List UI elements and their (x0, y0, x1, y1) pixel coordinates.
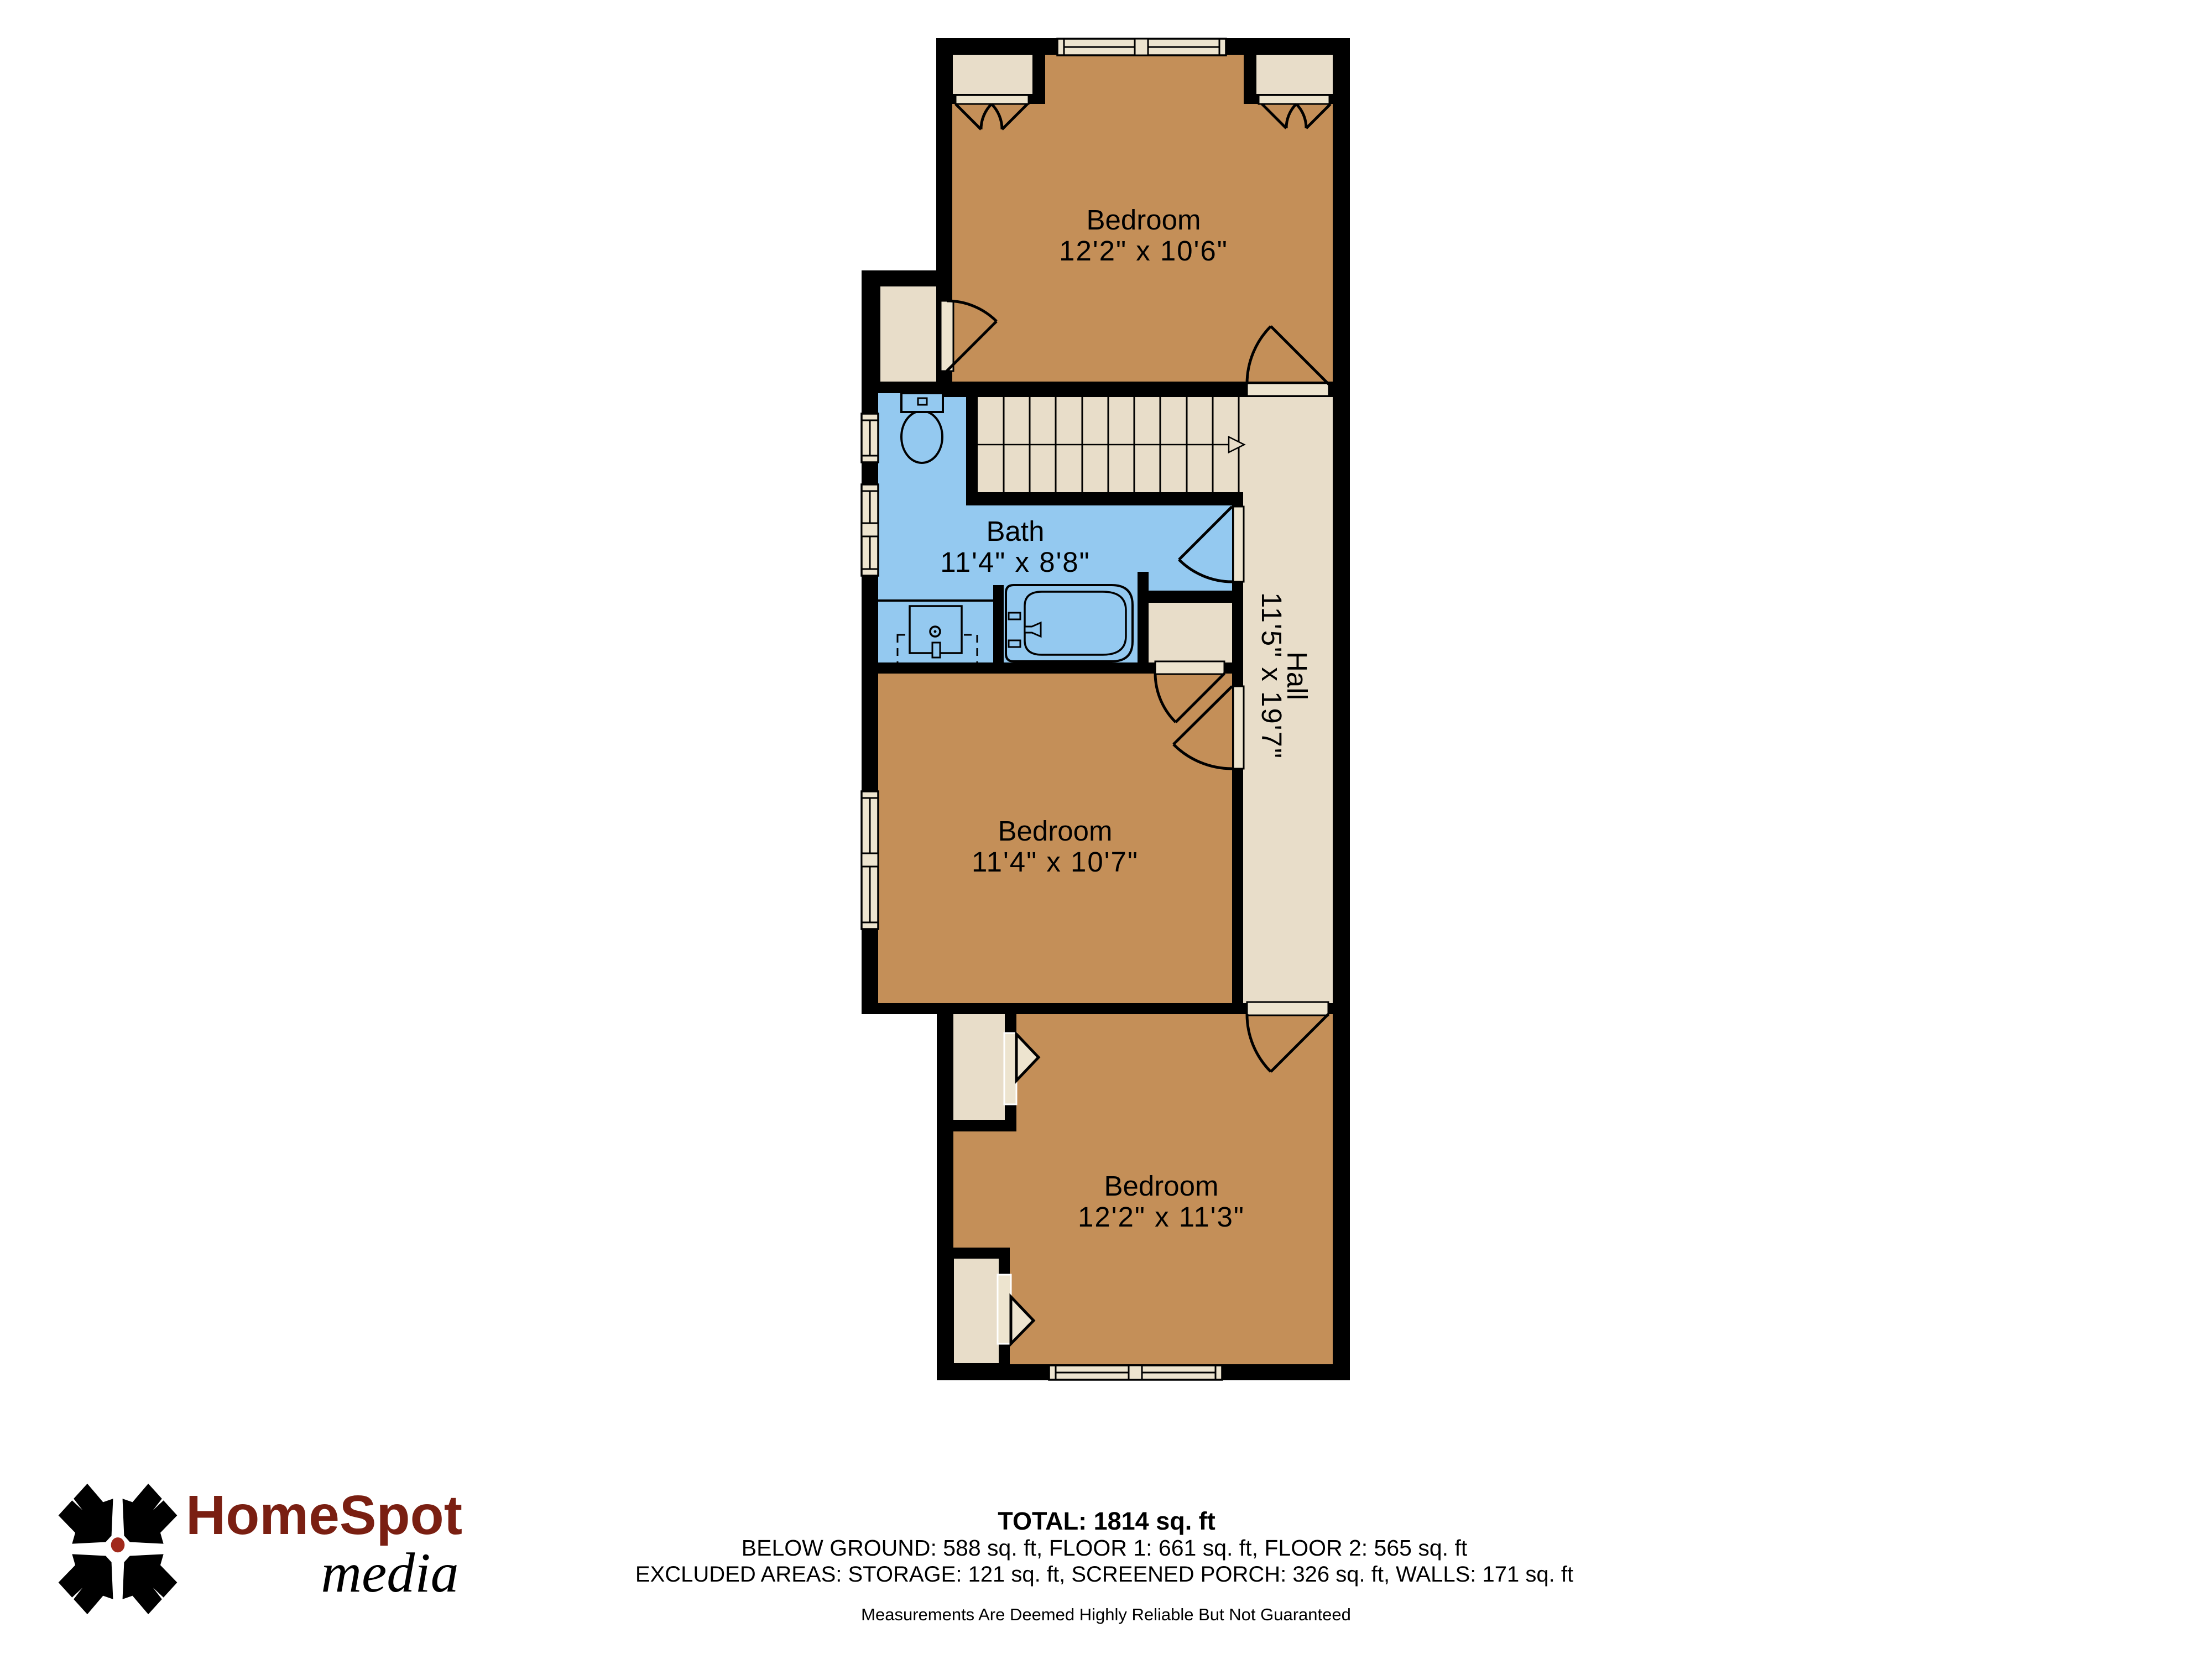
svg-text:Bedroom: Bedroom (1087, 204, 1201, 236)
svg-text:Measurements Are Deemed Highly: Measurements Are Deemed Highly Reliable … (861, 1605, 1351, 1624)
svg-text:Bedroom: Bedroom (998, 815, 1113, 847)
svg-text:11'4" x 10'7": 11'4" x 10'7" (972, 846, 1139, 878)
svg-text:HomeSpot: HomeSpot (186, 1484, 462, 1546)
svg-text:media: media (321, 1542, 458, 1604)
svg-text:11'4" x 8'8": 11'4" x 8'8" (940, 546, 1091, 578)
svg-text:Bedroom: Bedroom (1104, 1170, 1219, 1202)
svg-text:12'2" x 11'3": 12'2" x 11'3" (1078, 1201, 1245, 1233)
svg-text:11'5" x 19'7": 11'5" x 19'7" (1256, 592, 1287, 759)
svg-text:EXCLUDED AREAS: STORAGE: 121 s: EXCLUDED AREAS: STORAGE: 121 sq. ft, SCR… (635, 1562, 1573, 1587)
svg-text:TOTAL: 1814 sq. ft: TOTAL: 1814 sq. ft (998, 1507, 1215, 1535)
svg-text:BELOW GROUND: 588 sq. ft, FLOO: BELOW GROUND: 588 sq. ft, FLOOR 1: 661 s… (742, 1535, 1468, 1561)
svg-text:12'2" x 10'6": 12'2" x 10'6" (1059, 235, 1228, 267)
svg-text:Bath: Bath (987, 515, 1045, 547)
